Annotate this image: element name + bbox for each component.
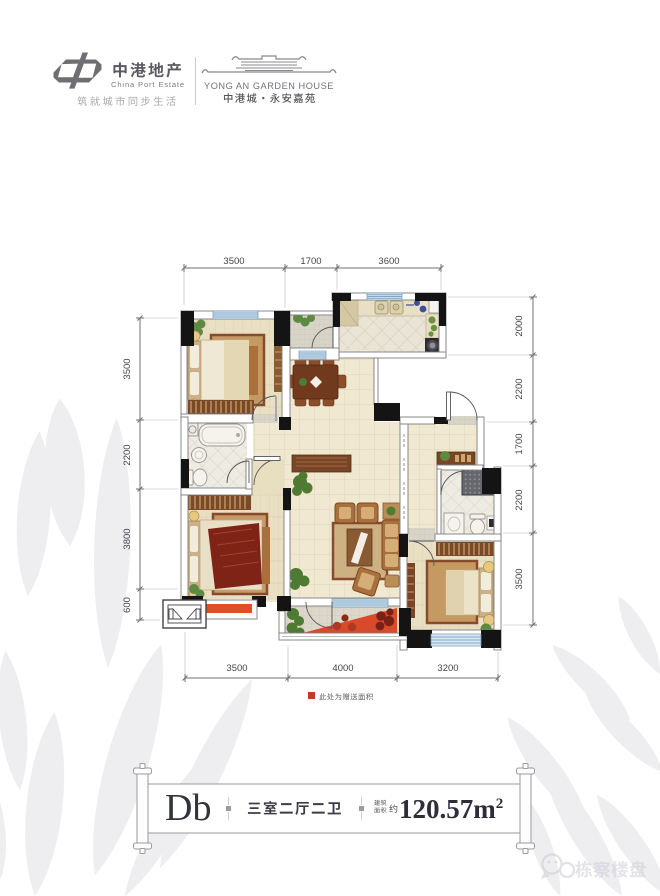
svg-text:3800: 3800: [122, 528, 133, 549]
svg-text:3500: 3500: [226, 663, 247, 674]
svg-text:1700: 1700: [514, 433, 525, 454]
svg-text:2200: 2200: [122, 444, 133, 465]
svg-text:Db: Db: [165, 787, 211, 829]
svg-text:600: 600: [122, 597, 133, 613]
svg-text:1700: 1700: [300, 256, 321, 267]
svg-text:2200: 2200: [514, 489, 525, 510]
svg-text:2000: 2000: [514, 315, 525, 336]
svg-text:YONG AN GARDEN HOUSE: YONG AN GARDEN HOUSE: [204, 81, 334, 91]
svg-text:4000: 4000: [332, 663, 353, 674]
svg-text:120.57m2: 120.57m2: [399, 794, 503, 824]
svg-text:3500: 3500: [223, 256, 244, 267]
svg-text:2200: 2200: [514, 378, 525, 399]
svg-text:3200: 3200: [437, 663, 458, 674]
svg-text:3600: 3600: [378, 256, 399, 267]
svg-text:3500: 3500: [514, 568, 525, 589]
svg-text:China Port Estate: China Port Estate: [111, 80, 185, 89]
svg-text:3500: 3500: [122, 358, 133, 379]
